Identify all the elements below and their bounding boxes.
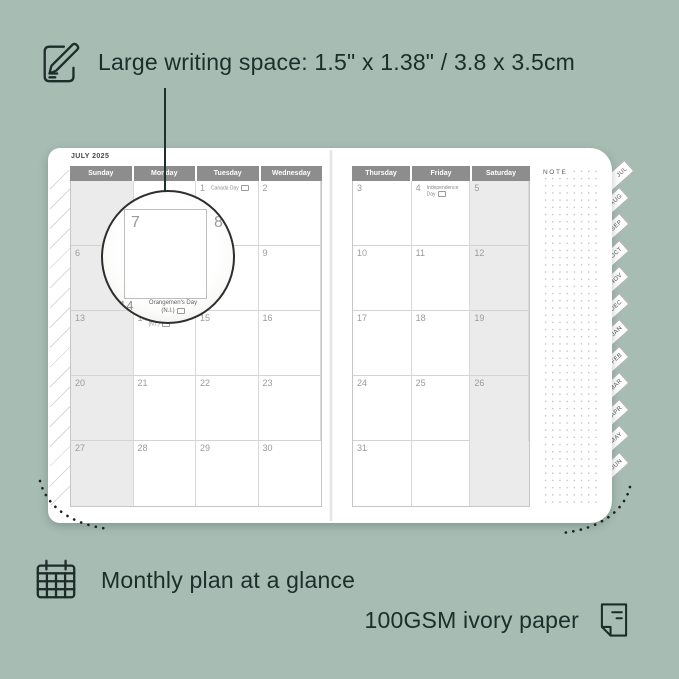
day-header: Saturday bbox=[470, 166, 530, 181]
calendar-cell: 23 bbox=[259, 376, 322, 441]
day-number: 4 bbox=[416, 183, 421, 193]
day-number: 9 bbox=[263, 248, 268, 258]
day-number: 30 bbox=[263, 443, 273, 453]
pointer-line bbox=[164, 88, 166, 192]
day-number: 5 bbox=[474, 183, 479, 193]
magnifier-circle: 7 8 14 Orangemen's Day (N.I.) bbox=[101, 190, 235, 324]
magnified-holiday-name: Orangemen's Day bbox=[149, 300, 197, 306]
calendar-cell: 2 bbox=[259, 181, 322, 246]
calendar-cell: 11 bbox=[412, 246, 471, 311]
holiday-label: Canada Day bbox=[211, 185, 256, 192]
stitch-arc-left bbox=[34, 477, 114, 533]
day-number: 23 bbox=[263, 378, 273, 388]
day-number: 24 bbox=[357, 378, 367, 388]
calendar-cell: 30 bbox=[259, 441, 322, 506]
day-number: 2 bbox=[263, 183, 268, 193]
stitch-arc-right bbox=[556, 481, 636, 537]
day-number: 11 bbox=[416, 248, 425, 258]
calendar-cell: 3 bbox=[353, 181, 412, 246]
calendar-cell: 26 bbox=[470, 376, 529, 441]
calendar-cell: 19 bbox=[470, 311, 529, 376]
holiday-flag-icon bbox=[241, 185, 249, 191]
left-edge-hatching bbox=[50, 170, 70, 505]
calendar-cell: 24 bbox=[353, 376, 412, 441]
day-number: 16 bbox=[263, 313, 273, 323]
holiday-label: Independence Day bbox=[427, 185, 468, 198]
calendar-cell: 29 bbox=[196, 441, 259, 506]
day-number: 12 bbox=[474, 248, 484, 258]
magnified-day-14: 14 bbox=[119, 298, 133, 313]
holiday-flag-icon bbox=[177, 308, 185, 314]
day-number: 21 bbox=[138, 378, 148, 388]
magnified-day-8: 8 bbox=[214, 214, 223, 232]
calendar-cell: 17 bbox=[353, 311, 412, 376]
holiday-flag-icon bbox=[438, 191, 446, 197]
day-number: 25 bbox=[416, 378, 426, 388]
day-number: 27 bbox=[75, 443, 85, 453]
day-number: 18 bbox=[416, 313, 426, 323]
calendar-cell: 13 bbox=[71, 311, 134, 376]
calendar-cell: 28 bbox=[134, 441, 197, 506]
calendar-cell: 12 bbox=[470, 246, 529, 311]
page-gutter bbox=[329, 150, 333, 521]
day-number: 26 bbox=[474, 378, 484, 388]
calendar-cell: 22 bbox=[196, 376, 259, 441]
calendar-cell: 5 bbox=[470, 181, 529, 246]
day-number: 22 bbox=[200, 378, 210, 388]
day-number: 29 bbox=[200, 443, 210, 453]
calendar-cell: 9 bbox=[259, 246, 322, 311]
day-number: 17 bbox=[357, 313, 367, 323]
day-header-row: ThursdayFridaySaturday bbox=[352, 166, 530, 181]
day-header: Thursday bbox=[352, 166, 410, 181]
calendar-cell: 4Independence Day bbox=[412, 181, 471, 246]
day-number: 10 bbox=[357, 248, 367, 258]
calendar-cell: 18 bbox=[412, 311, 471, 376]
calendar-cell: 21 bbox=[134, 376, 197, 441]
day-number: 19 bbox=[474, 313, 484, 323]
day-header-row: SundayMondayTuesdayWednesday bbox=[70, 166, 322, 181]
calendar-cell: 15 bbox=[196, 311, 259, 376]
day-header: Friday bbox=[410, 166, 470, 181]
note-label: NOTE bbox=[543, 169, 569, 176]
note-dot-grid: NOTE bbox=[540, 166, 597, 506]
calendar-cell: 16 bbox=[259, 311, 322, 376]
day-number: 31 bbox=[357, 443, 367, 453]
calendar-cell: 31 bbox=[353, 441, 412, 506]
day-number: 13 bbox=[75, 313, 85, 323]
day-header: Wednesday bbox=[259, 166, 323, 181]
calendar-cell: 20 bbox=[71, 376, 134, 441]
calendar-body: 34Independence Day510111217181924252631 bbox=[352, 181, 530, 507]
month-title: JULY 2025 bbox=[71, 153, 109, 160]
day-header: Tuesday bbox=[195, 166, 259, 181]
month-tab-label: JAN bbox=[610, 325, 623, 338]
magnified-holiday: Orangemen's Day (N.I.) bbox=[135, 299, 211, 315]
day-header: Sunday bbox=[70, 166, 132, 181]
calendar-cell bbox=[470, 441, 529, 506]
day-number: 1 bbox=[200, 183, 205, 193]
calendar-cell: 10 bbox=[353, 246, 412, 311]
magnified-day-7: 7 bbox=[131, 214, 140, 232]
right-calendar-grid: ThursdayFridaySaturday34Independence Day… bbox=[352, 166, 530, 507]
day-number: 28 bbox=[138, 443, 148, 453]
month-tab-label: JUL bbox=[616, 166, 629, 178]
magnified-holiday-region: (N.I.) bbox=[161, 308, 174, 314]
day-number: 20 bbox=[75, 378, 85, 388]
calendar-cell bbox=[412, 441, 471, 506]
day-number: 6 bbox=[75, 248, 80, 258]
product-image: { "colors":{"background":"#a7bcb3","ink"… bbox=[0, 0, 679, 679]
day-number: 3 bbox=[357, 183, 362, 193]
calendar-cell: 25 bbox=[412, 376, 471, 441]
